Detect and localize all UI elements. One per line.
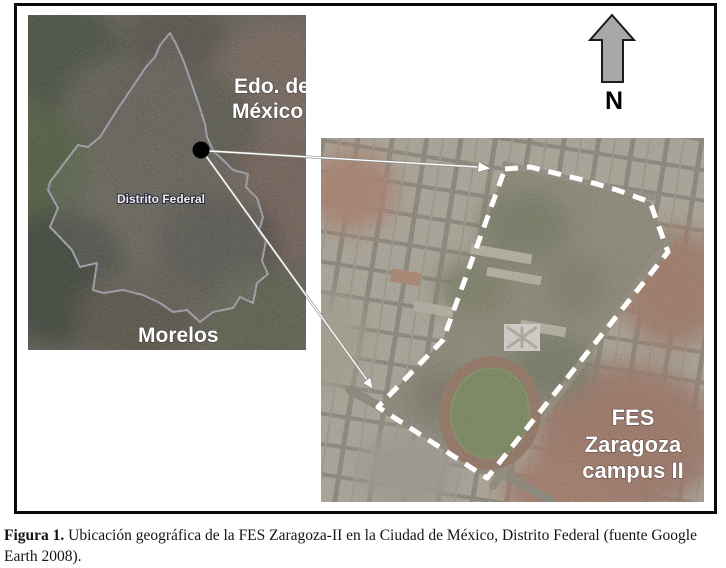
figure-page: { "caption": { "label": "Figura 1.", "te… (0, 0, 726, 567)
region-label-morelos: Morelos (138, 324, 219, 347)
campus-label-line1: FES (612, 405, 655, 430)
north-arrow-icon (590, 15, 634, 82)
campus-label-line2: Zaragoza (585, 432, 682, 457)
region-label-distrito-federal: Distrito Federal (117, 192, 205, 206)
campus-label-line3: campus II (582, 458, 683, 483)
region-label-edomex-line1: Edo. de (234, 75, 306, 98)
campus-map-image: FES Zaragoza campus II (321, 138, 704, 502)
caption-label: Figura 1. (4, 527, 64, 544)
leftmap-noise-light (28, 15, 306, 350)
figure-caption: Figura 1. Ubicación geográfica de la FES… (4, 526, 718, 568)
region-label-edomex-line2: México (232, 100, 303, 123)
north-label: N (605, 87, 623, 115)
context-map-image: Edo. de México Distrito Federal Morelos (28, 15, 306, 350)
north-indicator: N (585, 10, 643, 116)
caption-text: Ubicación geográfica de la FES Zaragoza-… (4, 527, 697, 565)
